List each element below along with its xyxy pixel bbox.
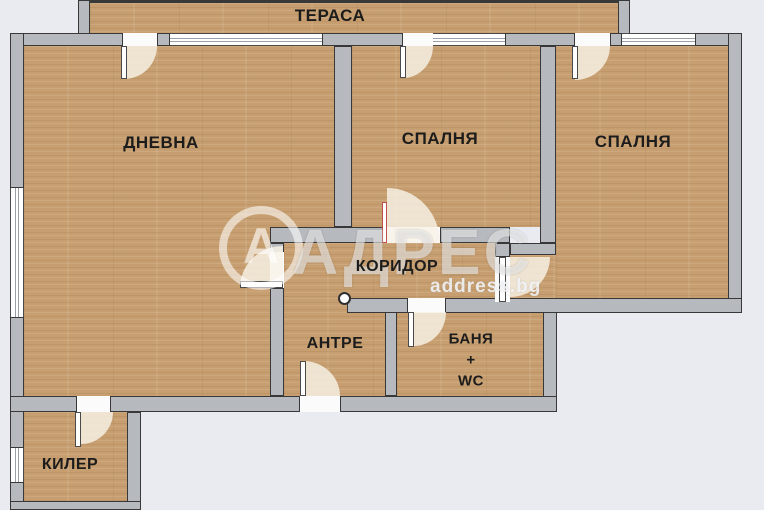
door-opening-terrace-living	[123, 33, 157, 46]
door-opening-entrance	[300, 396, 340, 412]
door-leaf-corridor-bedroom-middle	[382, 202, 387, 243]
wall-corridor-bottom-right	[445, 298, 742, 313]
wall-top-4	[610, 33, 622, 46]
wall-top-stub	[157, 33, 170, 46]
window-bedroom-middle-top	[433, 33, 505, 46]
wall-entry-bathroom	[385, 312, 397, 396]
wall-left-upper	[10, 33, 24, 188]
door-leaf-terrace-bedroom-middle	[400, 46, 406, 78]
door-leaf-living-corridor	[240, 281, 283, 288]
wall-corridor-top-right	[440, 227, 510, 243]
wall-pantry-bottom	[10, 501, 141, 510]
door-opening-terrace-bedroom-right	[575, 33, 610, 46]
window-bedroom-right-top	[622, 33, 695, 46]
door-leaf-corridor-bathroom	[408, 312, 414, 347]
terrace-top-edge	[78, 0, 630, 3]
room-label-terrace: ТЕРАСА	[295, 6, 366, 26]
door-leaf-corridor-bedroom-right	[499, 257, 506, 302]
room-label-bedroom-middle: СПАЛНЯ	[402, 129, 478, 149]
wall-top-1	[10, 33, 123, 46]
wall-bottom-3	[340, 396, 557, 412]
room-label-entry: АНТРЕ	[307, 335, 364, 353]
wall-pantry-right	[127, 412, 141, 510]
window-living-top	[170, 33, 322, 46]
door-leaf-terrace-living	[121, 46, 127, 79]
door-opening-corridor-bathroom	[408, 298, 445, 313]
wall-living-bedroom-divider	[334, 46, 352, 227]
door-opening-pantry	[77, 396, 110, 412]
wall-left-middle	[10, 317, 24, 448]
room-label-pantry: КИЛЕР	[42, 456, 98, 474]
bathroom-label-line1: БАНЯ	[449, 329, 494, 350]
wall-top-3	[505, 33, 575, 46]
room-label-bedroom-right: СПАЛНЯ	[595, 132, 671, 152]
room-label-bathroom: БАНЯ + WC	[449, 329, 494, 392]
wall-bottom-2	[110, 396, 300, 412]
room-floor-bedroom-right	[556, 46, 728, 298]
wall-corridor-top-left	[270, 227, 383, 243]
bathroom-label-line3: WC	[449, 371, 494, 392]
door-leaf-entrance	[300, 361, 306, 396]
room-label-living: ДНЕВНА	[123, 133, 199, 153]
door-opening-terrace-bedroom-middle	[403, 33, 433, 46]
wall-top-2	[322, 33, 403, 46]
floor-plan: А АДРЕС address.bg ТЕРАСА ДНЕВНА СПАЛНЯ …	[0, 0, 764, 510]
wall-right-outer	[728, 33, 742, 312]
wall-corridor-bottom-left	[347, 298, 408, 313]
wall-corridor-right-stub	[495, 243, 510, 257]
wall-bottom-1	[10, 396, 77, 412]
bathroom-label-line2: +	[449, 350, 494, 371]
room-label-corridor: КОРИДОР	[356, 258, 438, 276]
window-pantry-left	[10, 448, 24, 482]
wall-living-entry	[270, 288, 284, 396]
wall-alcove-top	[510, 243, 556, 255]
door-leaf-pantry	[75, 412, 81, 447]
window-living-left	[10, 188, 24, 317]
wall-bedrooms-divider	[540, 46, 556, 243]
door-pivot-symbol	[338, 292, 351, 305]
door-leaf-terrace-bedroom-right	[572, 46, 578, 79]
